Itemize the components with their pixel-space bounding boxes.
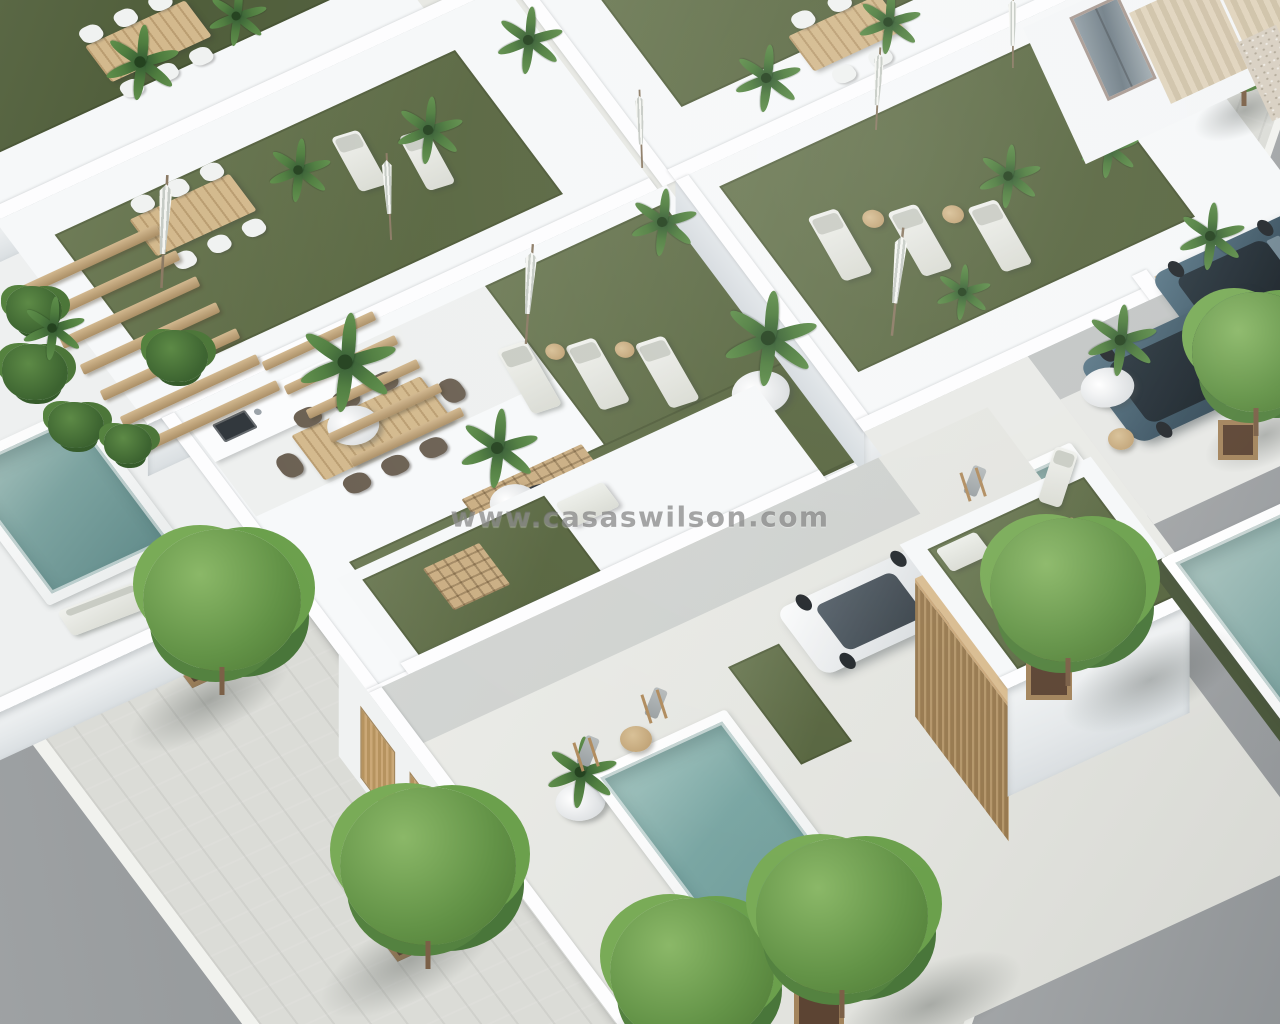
deck-chair — [962, 466, 988, 500]
garden-plant — [2, 344, 68, 400]
tree-planter — [1218, 420, 1258, 460]
deck-chair — [575, 736, 601, 770]
side-table — [620, 726, 652, 752]
street-tree — [990, 518, 1146, 662]
parasol — [1007, 0, 1018, 68]
street-tree — [756, 838, 928, 994]
street-tree — [340, 787, 516, 945]
side-table — [1108, 428, 1134, 450]
garden-plant — [146, 330, 208, 382]
garden-plant — [104, 424, 152, 464]
deck-chair — [643, 688, 669, 722]
aerial-render: www.casaswilson.com — [0, 0, 1280, 1024]
street-tree — [143, 529, 301, 671]
watermark-text: www.casaswilson.com — [450, 501, 829, 534]
parasol — [633, 96, 647, 168]
car-wheel — [1254, 218, 1277, 239]
garden-plant — [48, 402, 104, 448]
car-wheel — [792, 592, 815, 613]
